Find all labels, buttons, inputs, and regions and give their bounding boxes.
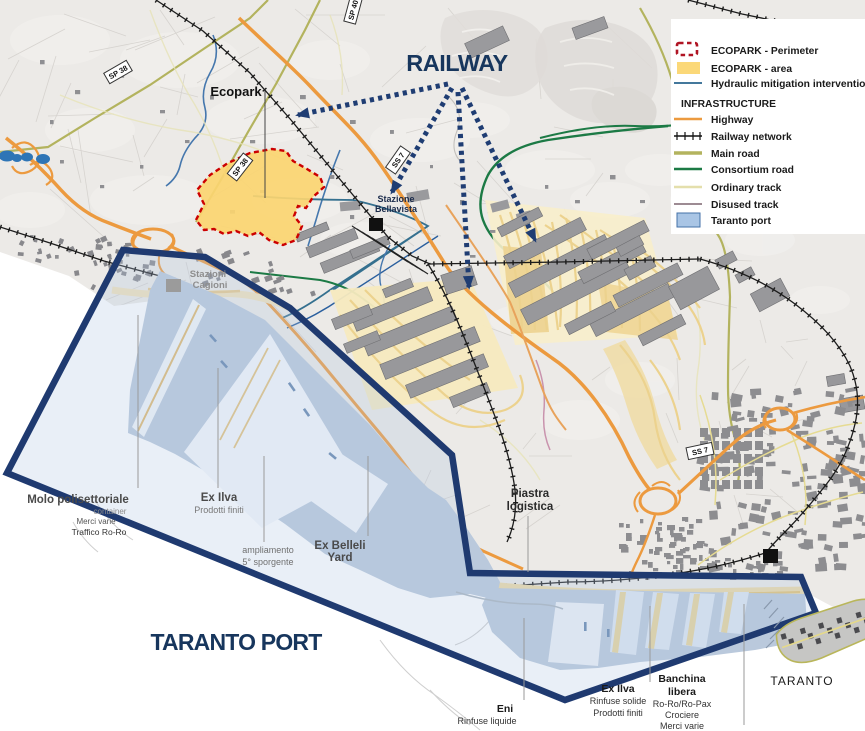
svg-text:Highway: Highway <box>711 115 754 126</box>
svg-text:Ex Ilva: Ex Ilva <box>601 683 634 695</box>
svg-text:Rinfuse solide: Rinfuse solide <box>590 696 647 706</box>
svg-text:Consortium road: Consortium road <box>711 165 794 176</box>
svg-text:INFRASTRUCTURE: INFRASTRUCTURE <box>681 99 776 110</box>
svg-text:Banchina: Banchina <box>658 673 705 685</box>
svg-text:Ro-Ro/Ro-Pax: Ro-Ro/Ro-Pax <box>653 699 712 709</box>
svg-text:ampliamento: ampliamento <box>242 545 294 555</box>
svg-text:RAILWAY: RAILWAY <box>406 50 508 76</box>
svg-text:Hydraulic mitigation intervent: Hydraulic mitigation interventions <box>711 79 865 90</box>
svg-text:logistica: logistica <box>507 501 554 513</box>
svg-text:Merci varie: Merci varie <box>76 517 116 526</box>
svg-text:Piastra: Piastra <box>511 488 550 500</box>
svg-text:libera: libera <box>668 686 696 698</box>
svg-text:Prodotti finiti: Prodotti finiti <box>194 505 244 515</box>
svg-text:Ecopark: Ecopark <box>210 84 262 99</box>
svg-text:Taranto port: Taranto port <box>711 216 771 227</box>
svg-text:Stazione: Stazione <box>377 194 414 204</box>
svg-text:Stazioni: Stazioni <box>190 269 226 280</box>
svg-text:Rinfuse liquide: Rinfuse liquide <box>457 716 516 726</box>
svg-text:container: container <box>94 507 127 516</box>
svg-text:ECOPARK - area: ECOPARK - area <box>711 64 792 75</box>
svg-text:Ordinary track: Ordinary track <box>711 183 782 194</box>
svg-text:TARANTO: TARANTO <box>770 674 833 688</box>
svg-text:Molo polisettoriale: Molo polisettoriale <box>27 494 129 506</box>
svg-text:ECOPARK - Perimeter: ECOPARK - Perimeter <box>711 46 818 57</box>
svg-text:Railway network: Railway network <box>711 132 792 143</box>
svg-text:Bellavista: Bellavista <box>375 204 418 214</box>
svg-text:Ex Belleli: Ex Belleli <box>314 540 365 552</box>
svg-text:Merci varie: Merci varie <box>660 721 704 731</box>
svg-text:Disused track: Disused track <box>711 200 779 211</box>
svg-text:Prodotti finiti: Prodotti finiti <box>593 708 643 718</box>
svg-text:TARANTO PORT: TARANTO PORT <box>151 629 323 655</box>
svg-text:Traffico Ro-Ro: Traffico Ro-Ro <box>72 527 127 537</box>
svg-text:Yard: Yard <box>328 552 353 564</box>
svg-text:Ex Ilva: Ex Ilva <box>201 492 238 504</box>
svg-text:Eni: Eni <box>497 703 513 715</box>
svg-text:Cagioni: Cagioni <box>193 280 228 291</box>
svg-text:Main road: Main road <box>711 149 760 160</box>
svg-text:Crociere: Crociere <box>665 710 699 720</box>
svg-text:5° sporgente: 5° sporgente <box>242 557 293 567</box>
